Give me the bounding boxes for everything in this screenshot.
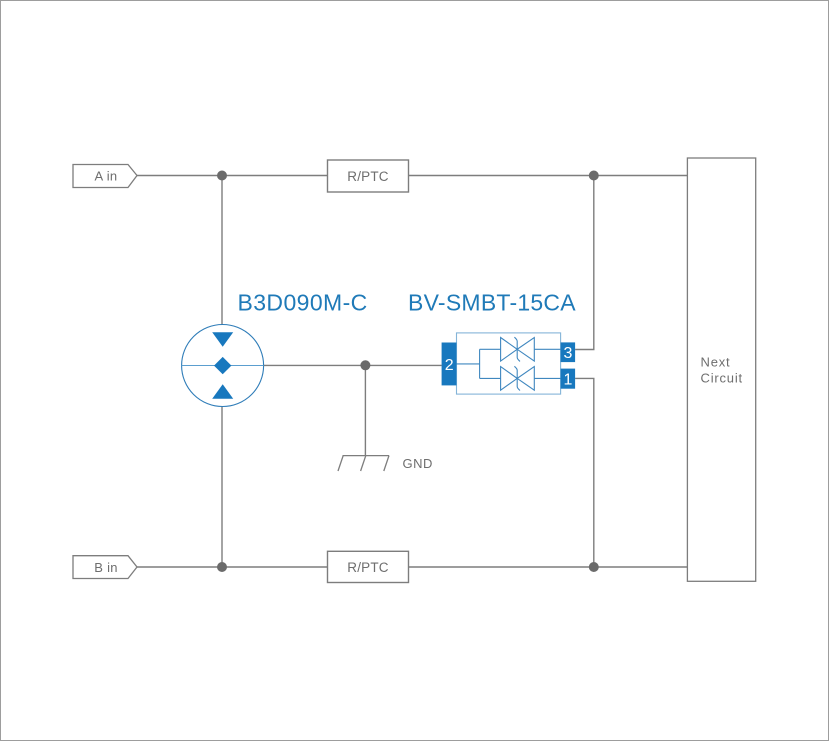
svg-text:2: 2 <box>445 357 454 374</box>
svg-text:BV-SMBT-15CA: BV-SMBT-15CA <box>408 290 576 316</box>
svg-text:B3D090M-C: B3D090M-C <box>238 290 368 316</box>
svg-text:R/PTC: R/PTC <box>347 169 389 184</box>
svg-text:A in: A in <box>95 169 118 184</box>
svg-text:R/PTC: R/PTC <box>347 560 389 575</box>
svg-text:Circuit: Circuit <box>701 371 743 386</box>
svg-text:GND: GND <box>403 456 433 471</box>
svg-text:Next: Next <box>701 355 731 370</box>
svg-text:1: 1 <box>563 371 572 388</box>
svg-text:B in: B in <box>94 560 118 575</box>
svg-text:3: 3 <box>563 345 572 362</box>
